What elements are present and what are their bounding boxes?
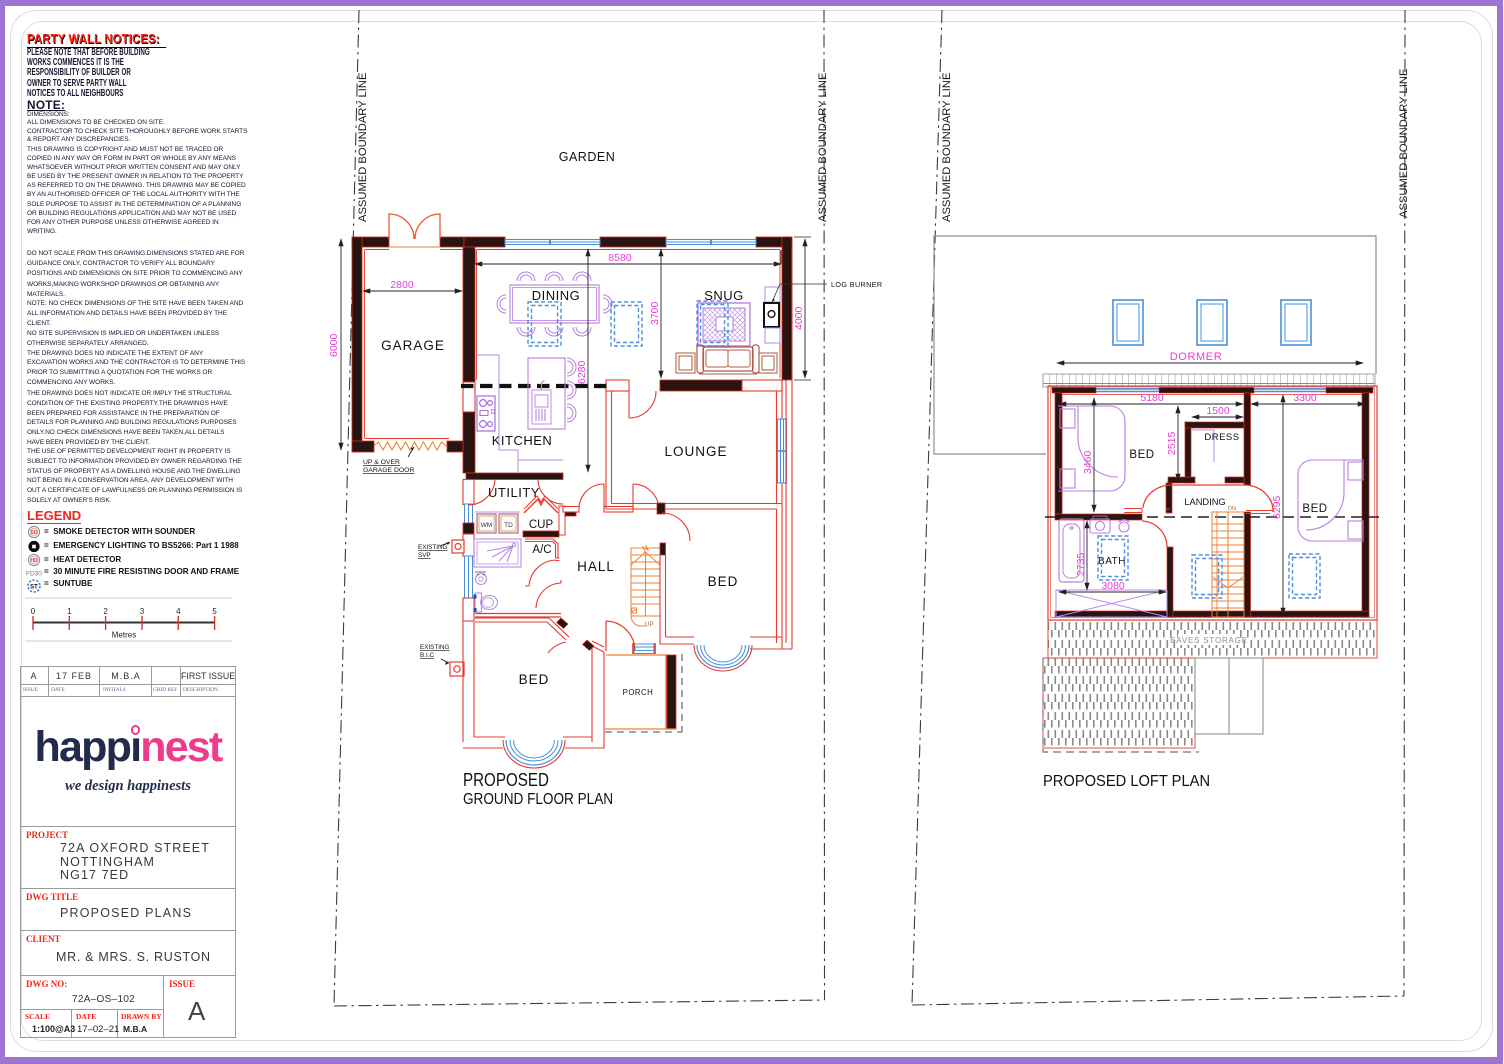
svg-text:PORCH: PORCH xyxy=(623,688,654,697)
svg-text:GARDEN: GARDEN xyxy=(559,150,615,164)
svg-text:SVP: SVP xyxy=(418,552,431,559)
svg-text:ASSUMED BOUNDARY LINE: ASSUMED BOUNDARY LINE xyxy=(357,73,369,222)
svg-text:B.I.C: B.I.C xyxy=(420,652,434,659)
svg-text:6295: 6295 xyxy=(1271,495,1283,519)
svg-text:EAVES STORAGE: EAVES STORAGE xyxy=(1170,636,1248,645)
svg-text:4000: 4000 xyxy=(793,306,805,330)
svg-text:BED: BED xyxy=(1129,449,1154,461)
svg-text:WM: WM xyxy=(481,522,493,529)
svg-text:2735: 2735 xyxy=(1075,552,1087,576)
svg-text:KITCHEN: KITCHEN xyxy=(492,433,553,448)
svg-text:TD: TD xyxy=(504,522,513,529)
svg-text:LANDING: LANDING xyxy=(1184,497,1225,507)
svg-text:ASSUMED BOUNDARY LINE: ASSUMED BOUNDARY LINE xyxy=(1398,69,1410,218)
svg-text:8580: 8580 xyxy=(608,252,632,264)
svg-text:DN: DN xyxy=(1228,506,1236,512)
svg-text:ASSUMED BOUNDARY LINE: ASSUMED BOUNDARY LINE xyxy=(941,73,953,222)
svg-text:PROPOSED: PROPOSED xyxy=(463,770,549,791)
svg-text:DRESS: DRESS xyxy=(1204,432,1239,443)
svg-text:3460: 3460 xyxy=(1082,450,1094,474)
svg-text:5180: 5180 xyxy=(1140,392,1164,404)
svg-text:DORMER: DORMER xyxy=(1170,351,1223,363)
svg-text:DINING: DINING xyxy=(532,288,581,303)
svg-text:SNUG: SNUG xyxy=(704,288,744,303)
svg-text:BED: BED xyxy=(1302,503,1327,515)
svg-text:2515: 2515 xyxy=(1166,431,1178,455)
svg-text:GARAGE DOOR: GARAGE DOOR xyxy=(363,467,414,474)
svg-text:3080: 3080 xyxy=(1101,580,1125,592)
svg-text:LOG BURNER: LOG BURNER xyxy=(831,280,883,289)
svg-text:GROUND FLOOR PLAN: GROUND FLOOR PLAN xyxy=(463,791,613,808)
svg-text:ASSUMED BOUNDARY LINE: ASSUMED BOUNDARY LINE xyxy=(817,73,829,222)
svg-text:6280: 6280 xyxy=(576,360,588,384)
svg-text:BED: BED xyxy=(708,574,739,589)
svg-text:1500: 1500 xyxy=(1206,405,1230,417)
svg-text:EXISTING: EXISTING xyxy=(420,644,449,651)
svg-text:BATH: BATH xyxy=(1098,556,1126,567)
svg-text:UTILITY: UTILITY xyxy=(488,485,540,500)
svg-text:2800: 2800 xyxy=(390,279,414,291)
svg-text:3700: 3700 xyxy=(649,301,661,325)
svg-text:UP: UP xyxy=(645,621,654,628)
svg-text:GARAGE: GARAGE xyxy=(381,338,445,353)
svg-text:CUP: CUP xyxy=(529,519,554,531)
svg-text:LOUNGE: LOUNGE xyxy=(664,444,727,459)
svg-text:UP & OVER: UP & OVER xyxy=(363,459,400,466)
svg-text:BED: BED xyxy=(519,672,550,687)
svg-text:3300: 3300 xyxy=(1293,392,1317,404)
svg-text:A/C: A/C xyxy=(532,544,551,556)
svg-text:HALL: HALL xyxy=(577,559,615,574)
svg-text:6000: 6000 xyxy=(328,333,340,357)
svg-text:PROPOSED LOFT PLAN: PROPOSED LOFT PLAN xyxy=(1043,773,1210,791)
